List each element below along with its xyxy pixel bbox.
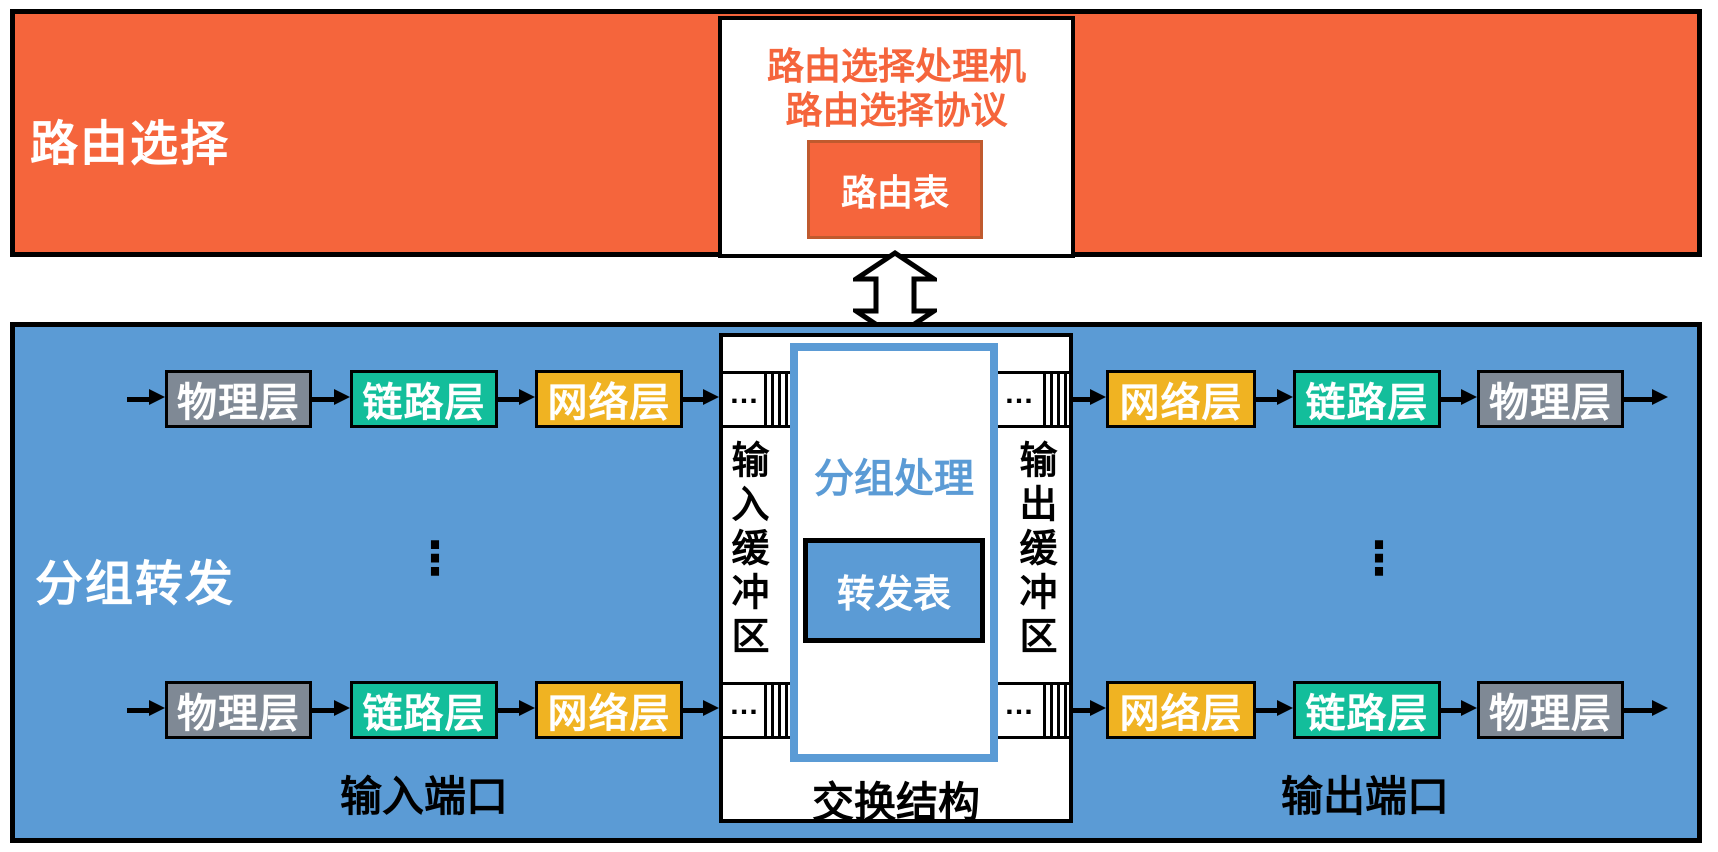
routing-protocol-title: 路由选择协议	[718, 80, 1075, 134]
queue-packets	[1039, 374, 1067, 425]
routing-table-box: 路由表	[807, 140, 983, 239]
layer-box-network: 网络层	[1106, 370, 1256, 428]
flow-arrow	[1256, 708, 1277, 713]
layer-box-network: 网络层	[1106, 681, 1256, 739]
flow-arrow	[683, 397, 703, 402]
output-buffer-label: 输出缓冲区	[1015, 440, 1053, 660]
flow-arrow	[1073, 708, 1090, 713]
layer-box-link: 链路层	[1293, 370, 1441, 428]
flow-arrow	[498, 708, 519, 713]
output-queue-bottom: …	[998, 682, 1069, 739]
flow-arrow	[498, 397, 519, 402]
layer-box-physical: 物理层	[1477, 681, 1624, 739]
layer-box-link: 链路层	[1293, 681, 1441, 739]
layer-box-link: 链路层	[350, 370, 498, 428]
router-architecture-diagram: 路由选择 路由选择处理机 路由选择协议 路由表 分组转发 分组处理 转发表 输入…	[0, 0, 1718, 852]
input-queue-bottom: …	[723, 682, 790, 739]
output-queue-top: …	[998, 371, 1069, 428]
more-ports-ellipsis-left: ⋮	[412, 532, 458, 585]
routing-section-label: 路由选择	[30, 104, 230, 174]
layer-box-physical: 物理层	[165, 370, 312, 428]
flow-arrow	[312, 708, 334, 713]
flow-arrow	[127, 708, 149, 713]
queue-packets	[760, 685, 788, 736]
flow-arrow	[1256, 397, 1277, 402]
flow-arrow	[683, 708, 703, 713]
flow-arrow	[127, 397, 149, 402]
queue-packets	[760, 374, 788, 425]
output-port-label: 输出端口	[1165, 763, 1565, 824]
flow-arrow	[1441, 708, 1461, 713]
flow-arrow	[1624, 397, 1652, 402]
flow-arrow	[312, 397, 334, 402]
input-buffer-label: 输入缓冲区	[727, 440, 765, 660]
more-ports-ellipsis-right: ⋮	[1356, 532, 1402, 585]
packet-processing-label: 分组处理	[790, 446, 998, 504]
queue-packets	[1039, 685, 1067, 736]
switch-fabric-label: 交换结构	[746, 769, 1046, 830]
layer-box-physical: 物理层	[1477, 370, 1624, 428]
input-port-label: 输入端口	[224, 763, 624, 824]
forwarding-section-label: 分组转发	[35, 544, 235, 614]
layer-box-physical: 物理层	[165, 681, 312, 739]
layer-box-network: 网络层	[535, 681, 683, 739]
input-queue-top: …	[723, 371, 790, 428]
layer-box-link: 链路层	[350, 681, 498, 739]
flow-arrow	[1073, 397, 1090, 402]
forwarding-table-box: 转发表	[803, 538, 985, 643]
layer-box-network: 网络层	[535, 370, 683, 428]
flow-arrow	[1624, 708, 1652, 713]
flow-arrow	[1441, 397, 1461, 402]
